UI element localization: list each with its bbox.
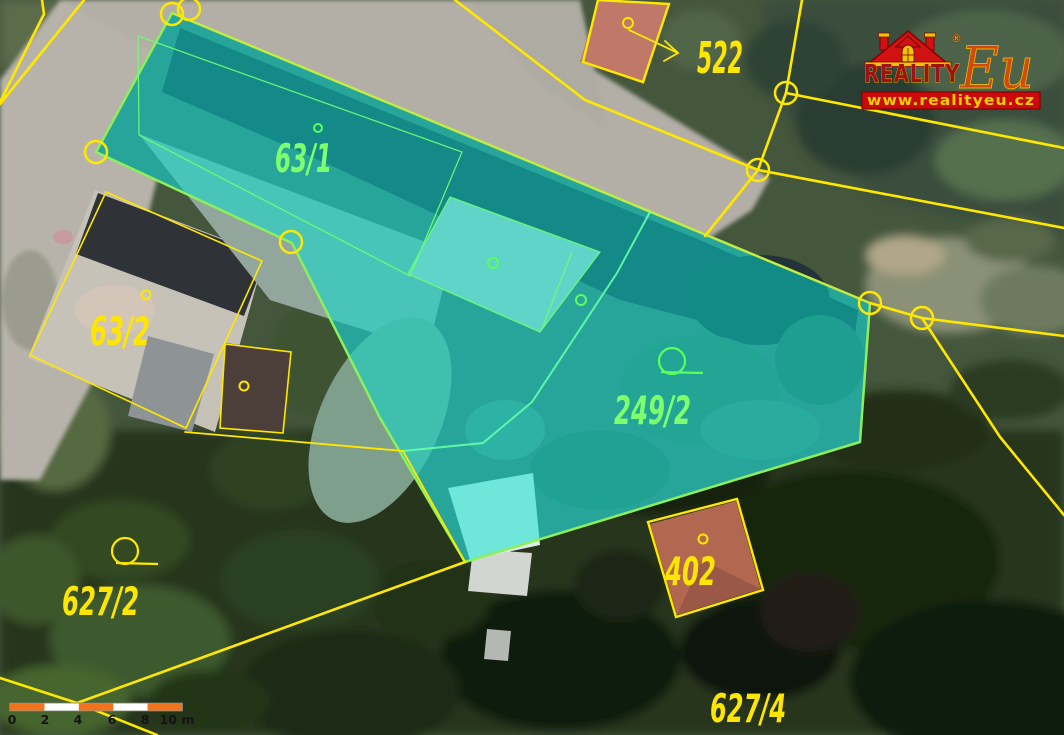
parcel-label-627-4: 627/4 — [710, 687, 786, 732]
scale-tick-6: 6 — [108, 712, 117, 727]
website-banner[interactable]: www.realityeu.cz — [862, 92, 1040, 109]
parcel-label-522: 522 — [697, 33, 743, 84]
parcel-label-627-2: 627/2 — [62, 580, 139, 625]
scale-tick-2: 2 — [41, 712, 50, 727]
parcel-label-402: 402 — [664, 550, 716, 595]
scale-tick-8: 8 — [141, 712, 150, 727]
scale-tick-4: 4 — [74, 712, 83, 727]
parcel-label-249-2: 249/2 — [614, 389, 691, 434]
scale-tick-0: 0 — [8, 712, 17, 727]
scale-tick-10m: 10 m — [160, 712, 195, 727]
parcel-label-63-1: 63/1 — [275, 137, 332, 182]
logo-wordmark: REALITY — [864, 59, 960, 88]
website-url[interactable]: www.realityeu.cz — [867, 93, 1035, 109]
cadastral-map-view: 522 63/1 63/2 249/2 402 627/2 627/4 0 2 … — [0, 0, 1064, 735]
parcel-label-63-2: 63/2 — [90, 310, 150, 355]
